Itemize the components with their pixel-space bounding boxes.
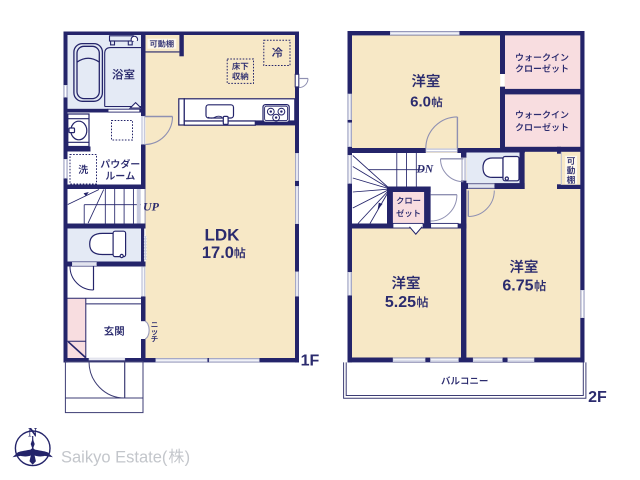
svg-text:1F: 1F — [301, 352, 320, 369]
svg-text:6.75: 6.75 — [502, 278, 533, 295]
svg-text:LDK: LDK — [205, 225, 241, 244]
svg-text:UP: UP — [143, 199, 160, 213]
svg-text:2F: 2F — [588, 389, 607, 406]
svg-text:Saikyo Estate(: Saikyo Estate( — [61, 449, 168, 467]
svg-text:DN: DN — [416, 163, 434, 175]
svg-text:): ) — [185, 449, 191, 467]
svg-text:6.0: 6.0 — [410, 94, 431, 111]
svg-text:5.25: 5.25 — [385, 294, 416, 311]
svg-text:17.0: 17.0 — [202, 244, 234, 262]
